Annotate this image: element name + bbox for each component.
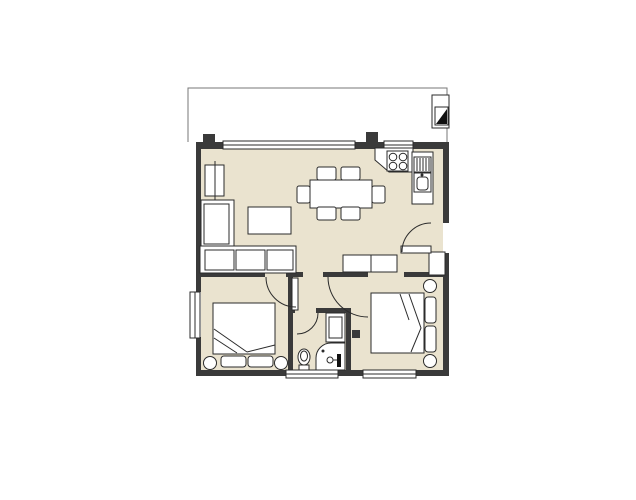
wall-bath-east [346, 308, 351, 376]
dining-chair-bottom-1 [317, 207, 336, 220]
sideboard [343, 255, 397, 272]
door-bedleft-leaf [292, 278, 298, 310]
shower-drain [322, 350, 325, 353]
nightstand-right-1 [424, 280, 437, 293]
wall-hall-south [323, 272, 368, 277]
wall-balcony-divider [366, 132, 378, 142]
toilet-tank [299, 365, 309, 370]
entry-door-leaf [401, 246, 431, 253]
dining-chair-top-1 [317, 167, 336, 180]
wall-switch-mark [352, 330, 360, 338]
bed-right [371, 293, 424, 353]
floor-door-gap-bedright [368, 272, 404, 277]
dining-chair-top-2 [341, 167, 360, 180]
bed-right-pillow-1 [425, 297, 436, 323]
dining-table [310, 180, 372, 208]
wall-bottom-1 [196, 370, 286, 376]
nightstand-right-2 [424, 355, 437, 368]
washbasin-inner [329, 317, 342, 338]
dining-chair-bottom-2 [341, 207, 360, 220]
sofa-chaise-cushion [204, 204, 229, 244]
dining-chair-right [372, 186, 385, 203]
bed-left [213, 303, 275, 354]
entry-wall-pier [429, 252, 445, 275]
floor-plan-canvas [0, 0, 636, 500]
wall-right-upper [443, 142, 449, 223]
coffee-table [248, 207, 291, 234]
wall-pier-top-left [203, 134, 215, 142]
bed-right-pillow-2 [425, 326, 436, 352]
bed-left-pillow-2 [248, 356, 273, 367]
balcony-floor [187, 87, 448, 143]
floor-plan-svg [0, 0, 636, 500]
sofa-cushion-2 [236, 250, 265, 270]
nightstand-left-2 [275, 357, 288, 370]
shower-panel [337, 354, 341, 367]
kitchen-sink-basin [417, 177, 428, 190]
kitchen-sink-faucet [421, 174, 424, 177]
bed-left-pillow-1 [221, 356, 246, 367]
sofa-cushion-3 [267, 250, 293, 270]
nightstand-left-1 [204, 357, 217, 370]
dining-chair-left [297, 186, 310, 203]
sofa-cushion-1 [205, 250, 234, 270]
